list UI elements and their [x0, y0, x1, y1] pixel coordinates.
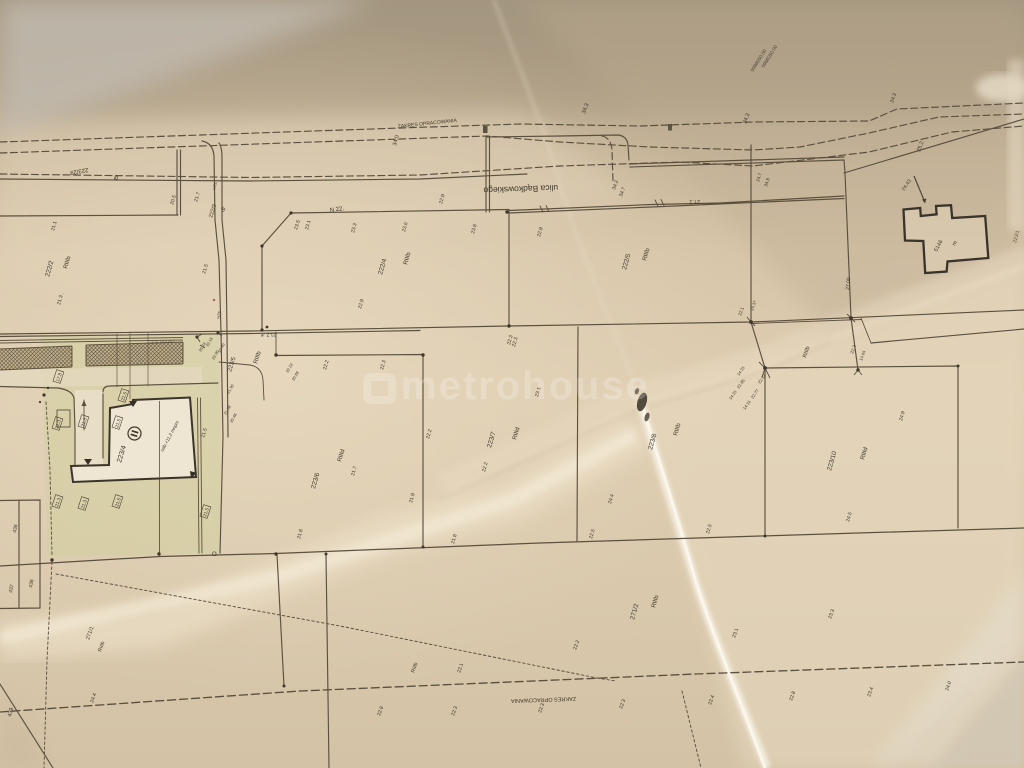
svg-text:metrohouse: metrohouse: [401, 364, 650, 408]
svg-text:27.1: 27.1: [689, 198, 700, 205]
svg-text:O: O: [212, 552, 217, 558]
svg-text:dr: dr: [112, 174, 118, 181]
svg-text:21.2 .e: 21.2 .e: [260, 331, 276, 338]
